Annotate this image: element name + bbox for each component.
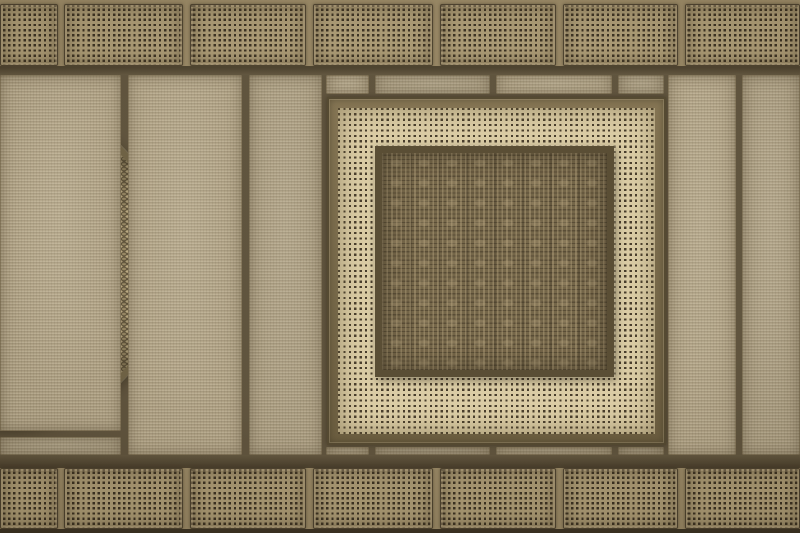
bottom-border-row bbox=[0, 468, 800, 529]
cane-panel bbox=[313, 4, 433, 66]
cane-panel bbox=[313, 468, 433, 529]
plank-strip-segment bbox=[618, 447, 664, 455]
middle-plank-band bbox=[0, 75, 800, 455]
cane-panel bbox=[64, 4, 183, 66]
cane-panel bbox=[685, 4, 800, 66]
top-border-row bbox=[0, 4, 800, 66]
inner-woven-square bbox=[375, 146, 614, 377]
square-frame bbox=[327, 97, 666, 445]
inner-weave-texture bbox=[382, 153, 607, 370]
cane-panel bbox=[0, 4, 58, 66]
plank-strip-segment bbox=[618, 75, 664, 94]
plank bbox=[0, 437, 121, 455]
bottom-divider-band bbox=[0, 455, 800, 468]
plank-strip-segment bbox=[326, 75, 369, 94]
plank-strip-segment bbox=[496, 75, 612, 94]
plank bbox=[668, 75, 736, 455]
plank bbox=[742, 75, 800, 455]
cane-panel bbox=[563, 4, 678, 66]
plank bbox=[249, 75, 322, 455]
cane-panel bbox=[685, 468, 800, 529]
plank bbox=[0, 75, 121, 431]
cane-panel bbox=[440, 4, 556, 66]
cane-webbing-field bbox=[338, 108, 655, 434]
plank-strip-segment bbox=[375, 447, 490, 455]
plank-strip-segment bbox=[375, 75, 490, 94]
plank-strip-segment bbox=[496, 447, 612, 455]
texture-composition-stage bbox=[0, 0, 800, 533]
plank-strip-segment bbox=[326, 447, 369, 455]
cane-panel bbox=[440, 468, 556, 529]
cane-panel bbox=[64, 468, 183, 529]
cane-panel bbox=[190, 468, 306, 529]
cane-panel bbox=[0, 468, 58, 529]
top-divider-band bbox=[0, 66, 800, 75]
cane-panel bbox=[563, 468, 678, 529]
plank bbox=[128, 75, 242, 455]
bottom-edge-line bbox=[0, 529, 800, 533]
cane-panel bbox=[190, 4, 306, 66]
